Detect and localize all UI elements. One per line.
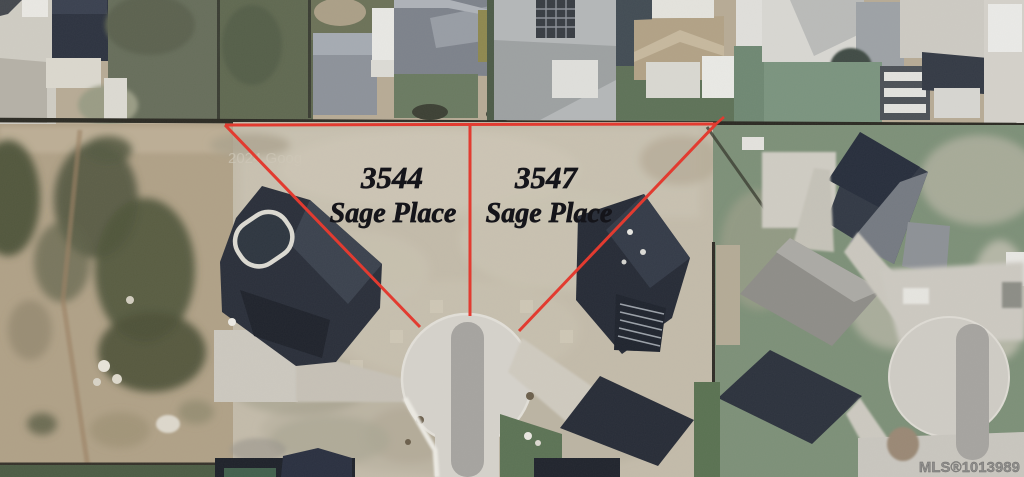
svg-text:Sage Place: Sage Place: [486, 198, 613, 229]
svg-text:Sage Place: Sage Place: [330, 198, 457, 229]
svg-text:3544: 3544: [360, 160, 423, 195]
svg-text:MLS®1013989: MLS®1013989: [919, 459, 1020, 476]
svg-text:3547: 3547: [514, 160, 579, 195]
